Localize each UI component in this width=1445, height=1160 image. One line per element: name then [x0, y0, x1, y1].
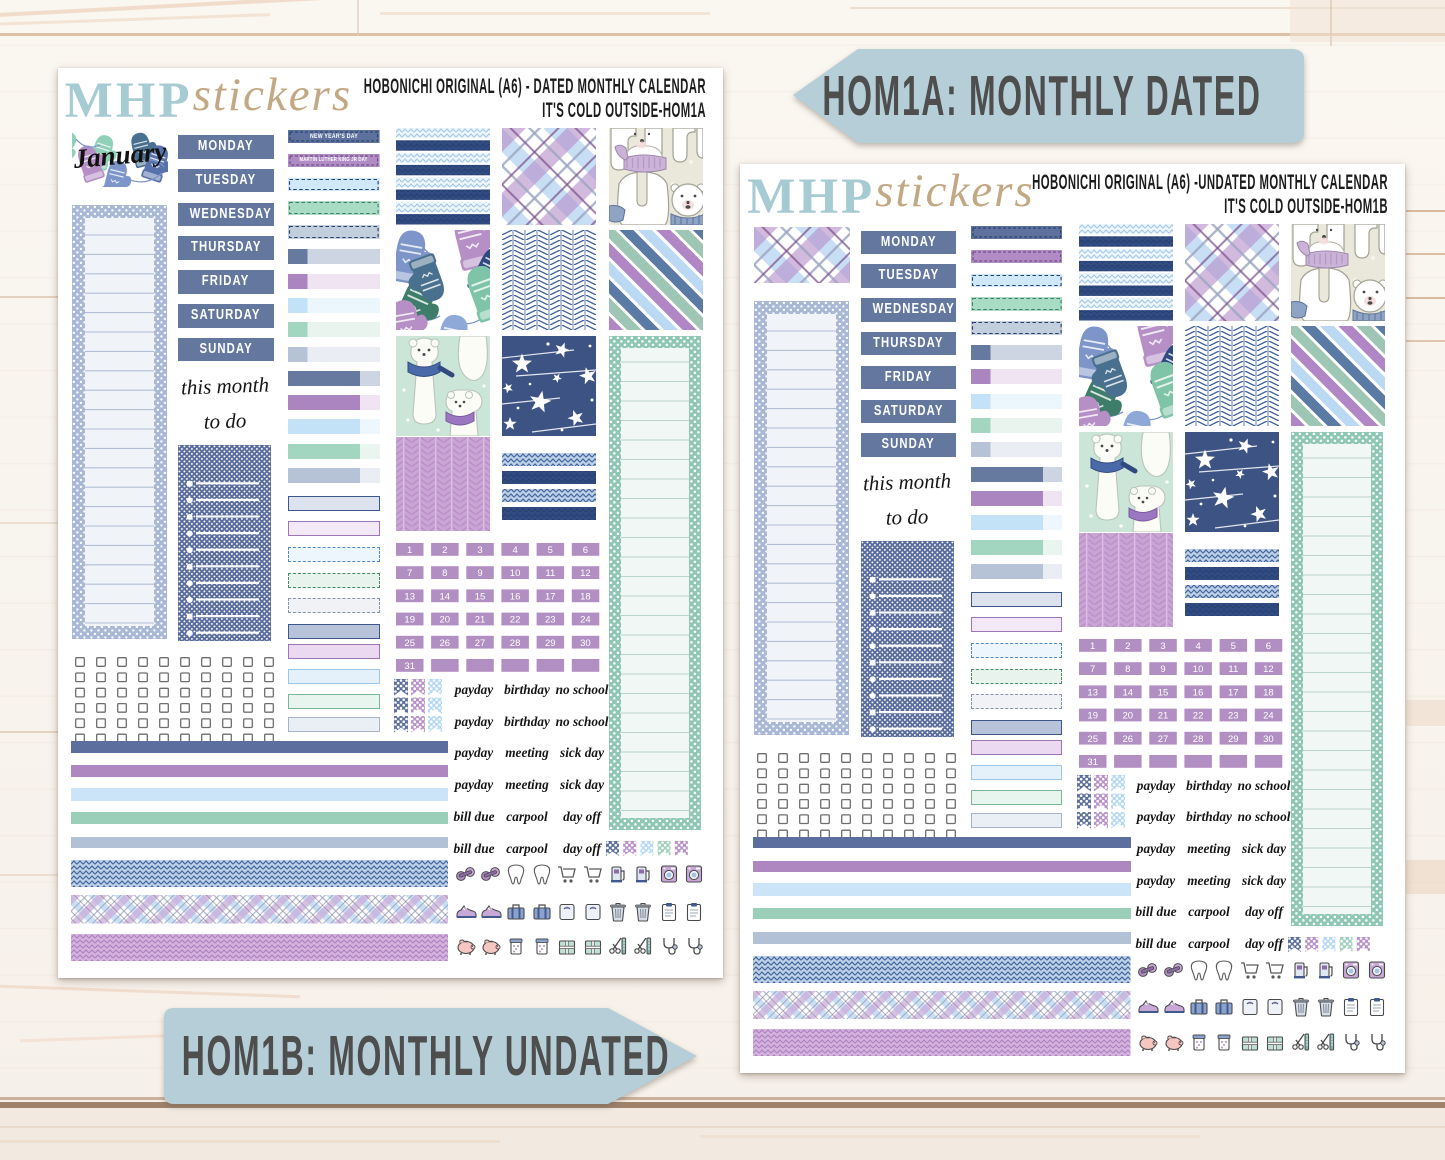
svg-text:31: 31 [1087, 757, 1098, 768]
svg-text:12: 12 [1263, 664, 1274, 675]
svg-text:30: 30 [580, 638, 591, 649]
svg-text:8: 8 [1125, 664, 1130, 675]
svg-text:17: 17 [1228, 687, 1239, 698]
svg-text:26: 26 [1122, 733, 1133, 744]
svg-text:10: 10 [1192, 664, 1203, 675]
svg-text:4: 4 [1195, 641, 1200, 652]
svg-text:21: 21 [475, 615, 486, 626]
svg-text:20: 20 [1122, 710, 1133, 721]
svg-text:16: 16 [510, 591, 521, 602]
svg-text:2: 2 [442, 545, 447, 556]
svg-text:4: 4 [513, 545, 518, 556]
svg-text:2: 2 [1125, 641, 1130, 652]
svg-text:29: 29 [545, 638, 556, 649]
svg-text:9: 9 [477, 568, 482, 579]
svg-text:3: 3 [1160, 641, 1165, 652]
svg-text:25: 25 [1087, 733, 1098, 744]
svg-text:23: 23 [1228, 710, 1239, 721]
svg-text:22: 22 [510, 615, 521, 626]
svg-text:19: 19 [1087, 710, 1098, 721]
svg-text:6: 6 [583, 545, 588, 556]
svg-text:5: 5 [548, 545, 553, 556]
svg-text:20: 20 [440, 615, 451, 626]
svg-text:16: 16 [1192, 687, 1203, 698]
svg-text:28: 28 [510, 638, 521, 649]
svg-text:14: 14 [440, 591, 451, 602]
svg-text:15: 15 [1157, 687, 1168, 698]
svg-text:3: 3 [477, 545, 482, 556]
svg-text:10: 10 [510, 568, 521, 579]
svg-text:1: 1 [1090, 641, 1095, 652]
svg-text:1: 1 [407, 545, 412, 556]
svg-text:14: 14 [1122, 687, 1133, 698]
svg-text:13: 13 [1087, 687, 1098, 698]
svg-text:7: 7 [1090, 664, 1095, 675]
svg-text:18: 18 [580, 591, 591, 602]
svg-text:26: 26 [440, 638, 451, 649]
svg-text:22: 22 [1192, 710, 1203, 721]
svg-text:31: 31 [405, 661, 416, 672]
svg-text:24: 24 [1263, 710, 1274, 721]
svg-text:21: 21 [1157, 710, 1168, 721]
svg-text:11: 11 [1228, 664, 1238, 675]
svg-text:6: 6 [1265, 641, 1270, 652]
svg-text:15: 15 [475, 591, 486, 602]
svg-text:5: 5 [1230, 641, 1235, 652]
svg-text:27: 27 [475, 638, 486, 649]
svg-text:23: 23 [545, 615, 556, 626]
svg-text:24: 24 [580, 615, 591, 626]
svg-text:12: 12 [580, 568, 591, 579]
svg-text:11: 11 [545, 568, 555, 579]
svg-text:30: 30 [1263, 733, 1274, 744]
svg-text:29: 29 [1228, 733, 1239, 744]
svg-text:18: 18 [1263, 687, 1274, 698]
svg-text:28: 28 [1192, 733, 1203, 744]
svg-text:7: 7 [407, 568, 412, 579]
svg-text:13: 13 [405, 591, 416, 602]
svg-text:25: 25 [405, 638, 416, 649]
svg-text:9: 9 [1160, 664, 1165, 675]
svg-text:27: 27 [1157, 733, 1168, 744]
svg-text:8: 8 [442, 568, 447, 579]
svg-text:19: 19 [405, 615, 416, 626]
svg-text:17: 17 [545, 591, 556, 602]
